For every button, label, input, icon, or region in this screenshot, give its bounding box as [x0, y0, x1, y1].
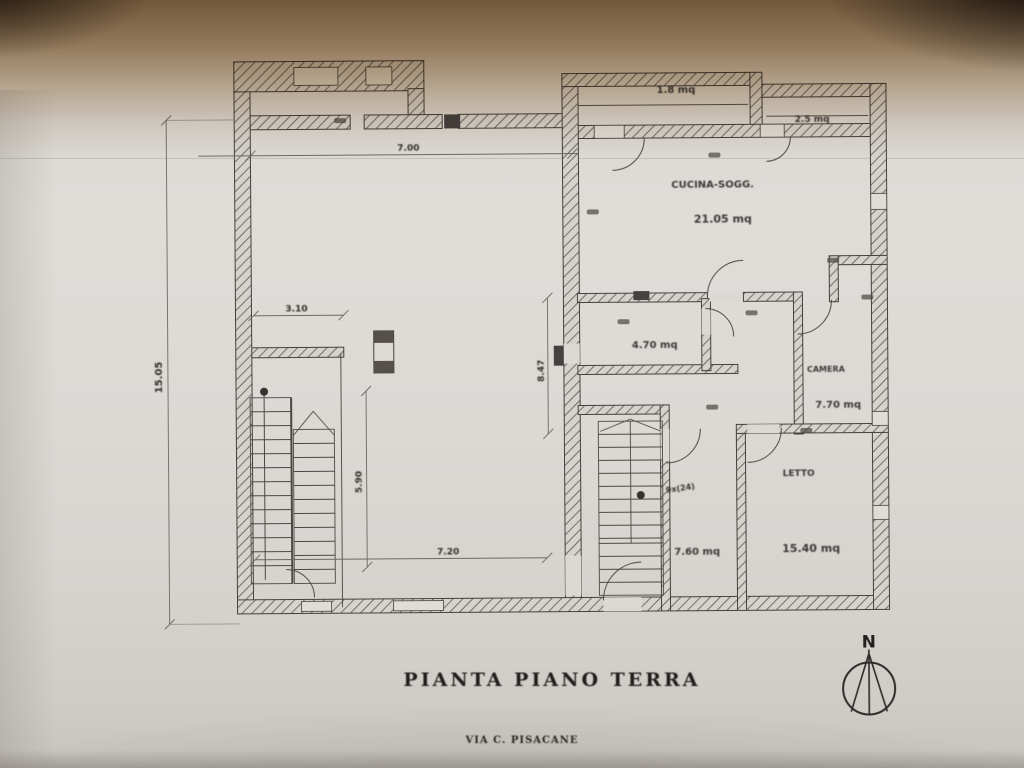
wall-right-outer	[870, 83, 890, 609]
walls	[234, 57, 890, 614]
wall-divider-2	[736, 424, 746, 610]
door-arc-stair-hall	[666, 429, 700, 463]
window-right-1	[871, 193, 887, 209]
stair-chevron-left	[293, 411, 334, 435]
door-gap-middle-1	[564, 344, 580, 364]
stair-treads-left-a	[250, 412, 292, 566]
door-gap-bath	[701, 309, 710, 335]
wall-top-c	[458, 114, 576, 129]
wall-top-b	[364, 114, 442, 129]
door-gap-letto	[747, 424, 779, 433]
illegible-dimension-marks	[334, 114, 874, 436]
label-bathroom-area: 4.70 mq	[632, 340, 678, 351]
staircase-right	[598, 419, 663, 595]
wall-block-mark-2	[633, 291, 649, 300]
wall-camera-left	[793, 292, 803, 434]
radiator-mark	[554, 346, 564, 366]
door-gap-bottom	[603, 597, 641, 611]
dimension-lines	[161, 113, 582, 630]
window-balcony-2	[366, 67, 392, 85]
window-bottom-2	[394, 600, 444, 610]
floor-plan-photo: 15.05 7.00 3.10 5.90 7.20 8.47 9x(24)	[0, 0, 1024, 768]
label-hall-area: 7.60 mq	[674, 547, 720, 558]
stair-start-dot-left	[260, 388, 268, 396]
door-arc-balcony-kitchen	[612, 138, 644, 170]
dim-top-width: 7.00	[397, 144, 419, 154]
door-arc-bottom-exit	[603, 562, 641, 600]
stair-treads-left-b	[293, 443, 335, 569]
wall-bath-bottom	[578, 364, 738, 374]
wall-hall-b	[743, 292, 797, 301]
wall-block-mark-1	[444, 114, 460, 128]
window-kitchen-1	[594, 125, 624, 138]
wall-balcony-right-top-b	[754, 83, 886, 97]
dim-mid-height: 8.47	[537, 360, 547, 382]
wall-room-divider-left	[252, 347, 344, 358]
window-kitchen-2	[760, 124, 784, 137]
label-letto: LETTO	[783, 469, 815, 479]
staircase-left	[250, 387, 335, 584]
plan-title: PIANTA PIANO TERRA	[402, 669, 702, 691]
window-right-2	[872, 411, 888, 425]
compass: N	[843, 632, 896, 715]
door-gap-middle-2	[565, 556, 581, 596]
door-arc-hall-kitchen	[707, 260, 743, 296]
label-kitchen-living: CUCINA-SOGG.	[671, 179, 754, 191]
stair-dot-right	[637, 491, 645, 499]
floor-plan-drawing: 15.05 7.00 3.10 5.90 7.20 8.47 9x(24)	[0, 0, 1024, 768]
dim-room-width: 3.10	[285, 304, 307, 314]
window-right-3	[873, 505, 889, 519]
partition-lines	[339, 104, 871, 608]
dim-bottom-width: 7.20	[437, 547, 459, 557]
label-kitchen-living-area: 21.05 mq	[694, 212, 752, 225]
dim-stair-run: 5.90	[355, 471, 365, 493]
wall-hall-c	[578, 405, 666, 415]
door-arc-balcony-right	[766, 137, 790, 161]
window-bottom-1	[302, 601, 332, 611]
partition-left-room	[341, 353, 343, 607]
plan-subtitle: VIA C. PISACANE	[372, 735, 672, 746]
label-balcony-left-area: 1.8 mq	[657, 85, 696, 96]
label-letto-area: 15.40 mq	[782, 542, 840, 555]
dim-left-height: 15.05	[154, 362, 165, 394]
label-balcony-right-area: 2.5 mq	[795, 115, 830, 125]
dimension-labels: 15.05 7.00 3.10 5.90 7.20 8.47 9x(24)	[152, 142, 696, 560]
label-camera: CAMERA	[807, 365, 846, 374]
label-camera-area: 7.70 mq	[815, 400, 861, 411]
compass-north-label: N	[862, 632, 876, 652]
window-balcony-1	[294, 67, 338, 85]
door-gap-kitchen-hall	[709, 292, 741, 301]
wall-bottom	[238, 595, 890, 614]
door-arcs	[283, 137, 833, 603]
balcony-parapet-1	[578, 104, 748, 105]
